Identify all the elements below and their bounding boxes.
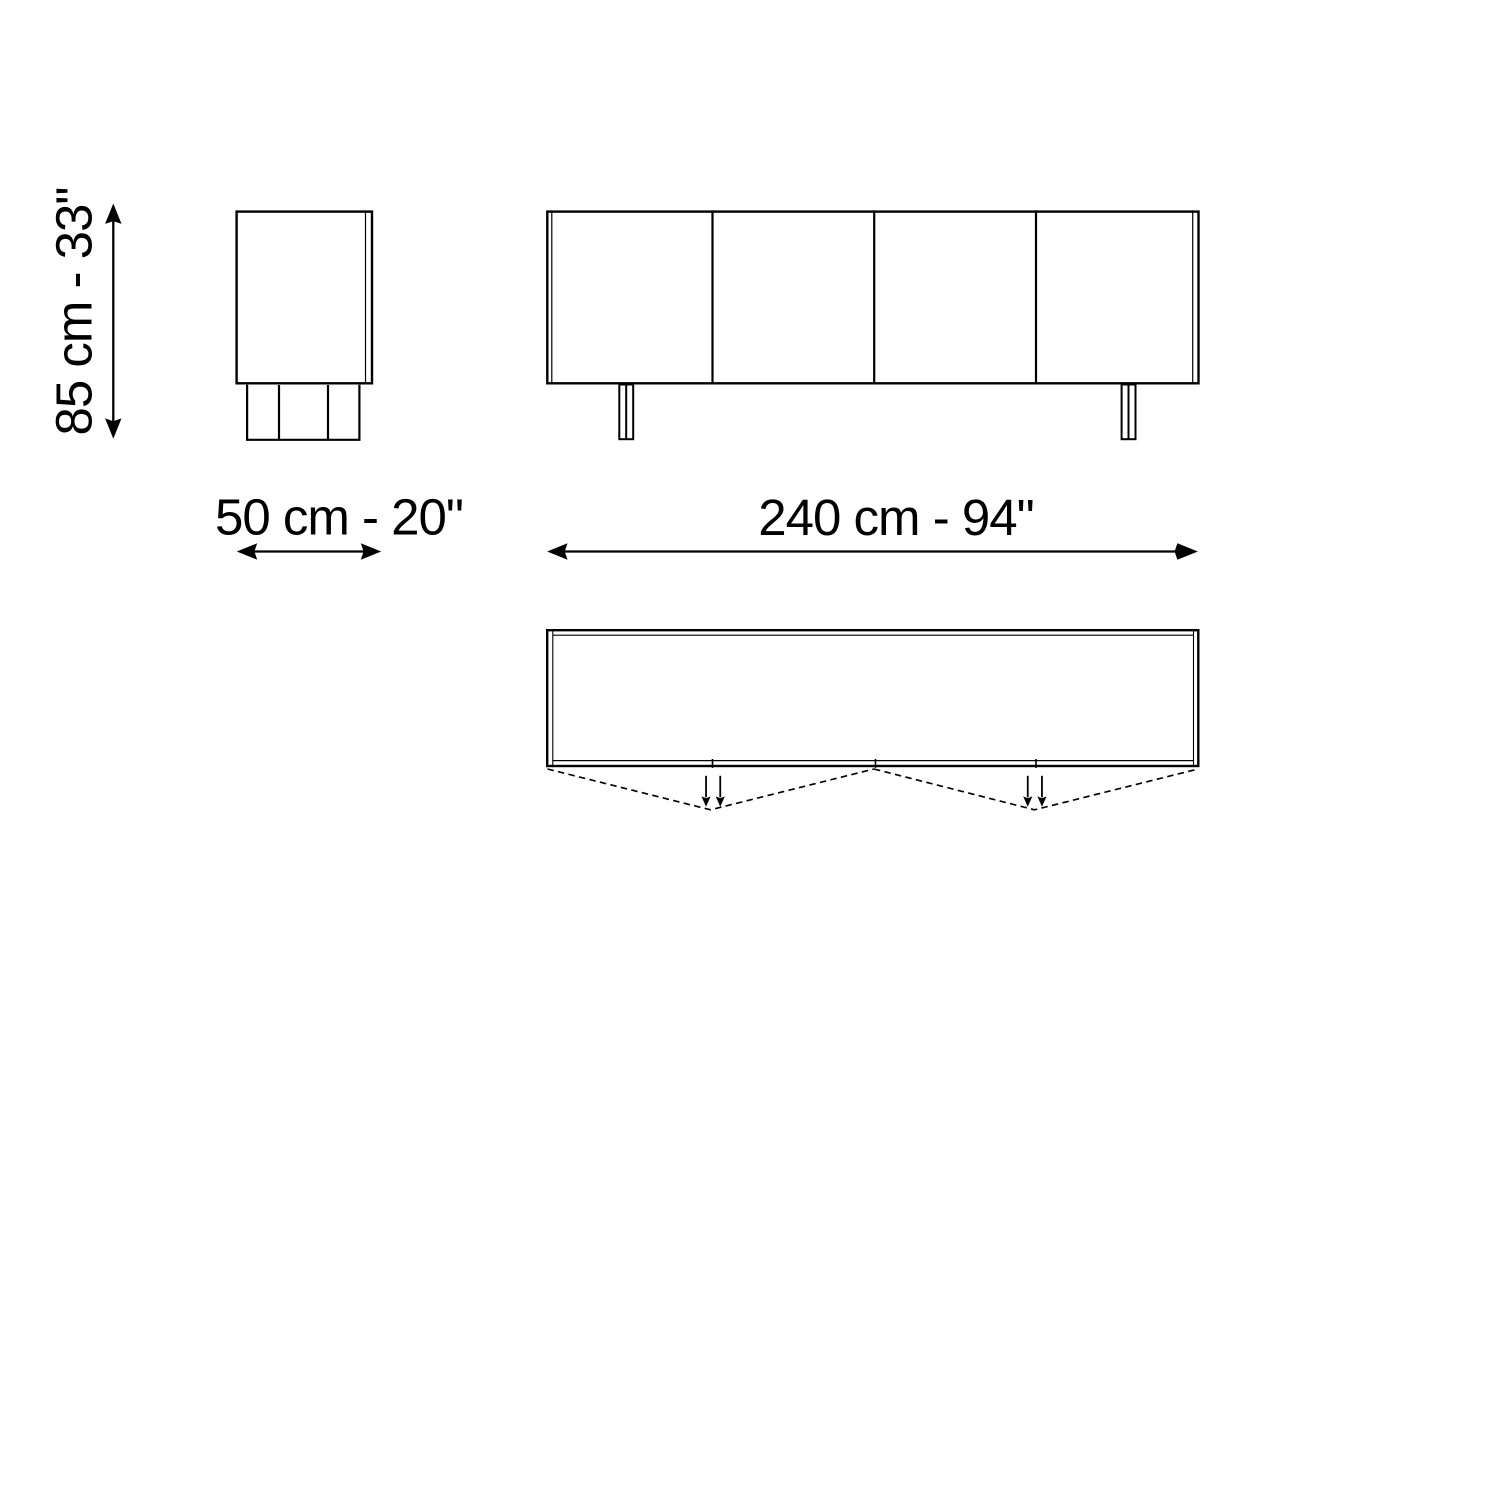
svg-text:85 cm - 33": 85 cm - 33" — [46, 187, 103, 435]
svg-text:240 cm - 94": 240 cm - 94" — [758, 489, 1033, 546]
svg-text:50 cm - 20": 50 cm - 20" — [215, 489, 463, 546]
